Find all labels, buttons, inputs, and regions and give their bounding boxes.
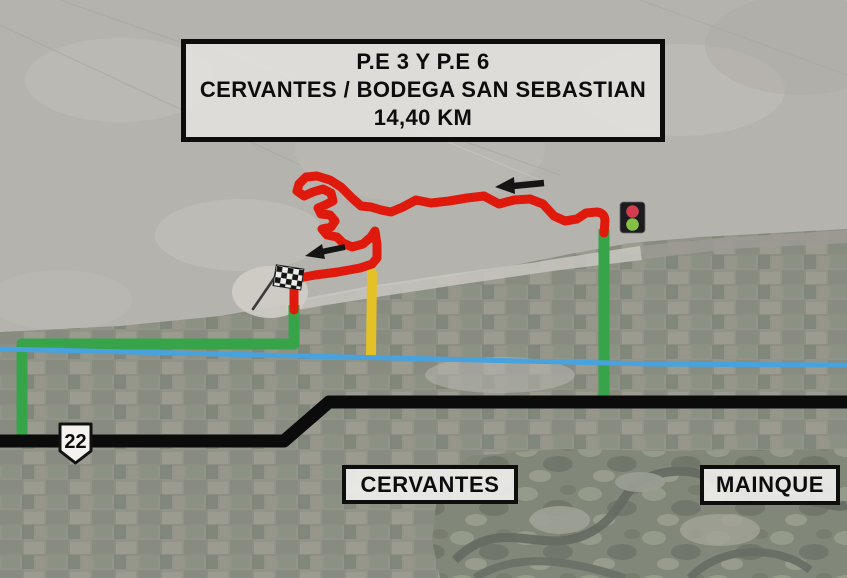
secondary-road — [371, 273, 372, 355]
route-22-shield: 22 — [60, 424, 91, 463]
traffic-light-icon — [620, 202, 645, 233]
stage-title-box: P.E 3 Y P.E 6 CERVANTES / BODEGA SAN SEB… — [181, 39, 665, 142]
stage-route — [294, 176, 605, 310]
direction-arrow-icon — [495, 177, 544, 194]
town-label-mainque: MAINQUE — [700, 465, 840, 505]
town-label-cervantes: CERVANTES — [342, 465, 518, 504]
stage-number: P.E 3 Y P.E 6 — [356, 49, 489, 76]
rally-stage-map: 22 P.E 3 Y P.E 6 CERVANTES / BO — [0, 0, 847, 578]
liaison-road-west — [22, 305, 294, 437]
route-shield-number: 22 — [64, 431, 86, 453]
direction-arrow-icon — [305, 244, 345, 259]
stage-distance: 14,40 KM — [374, 105, 473, 132]
river-line — [0, 349, 847, 365]
highway-road — [0, 402, 847, 441]
stage-name: CERVANTES / BODEGA SAN SEBASTIAN — [200, 77, 646, 104]
